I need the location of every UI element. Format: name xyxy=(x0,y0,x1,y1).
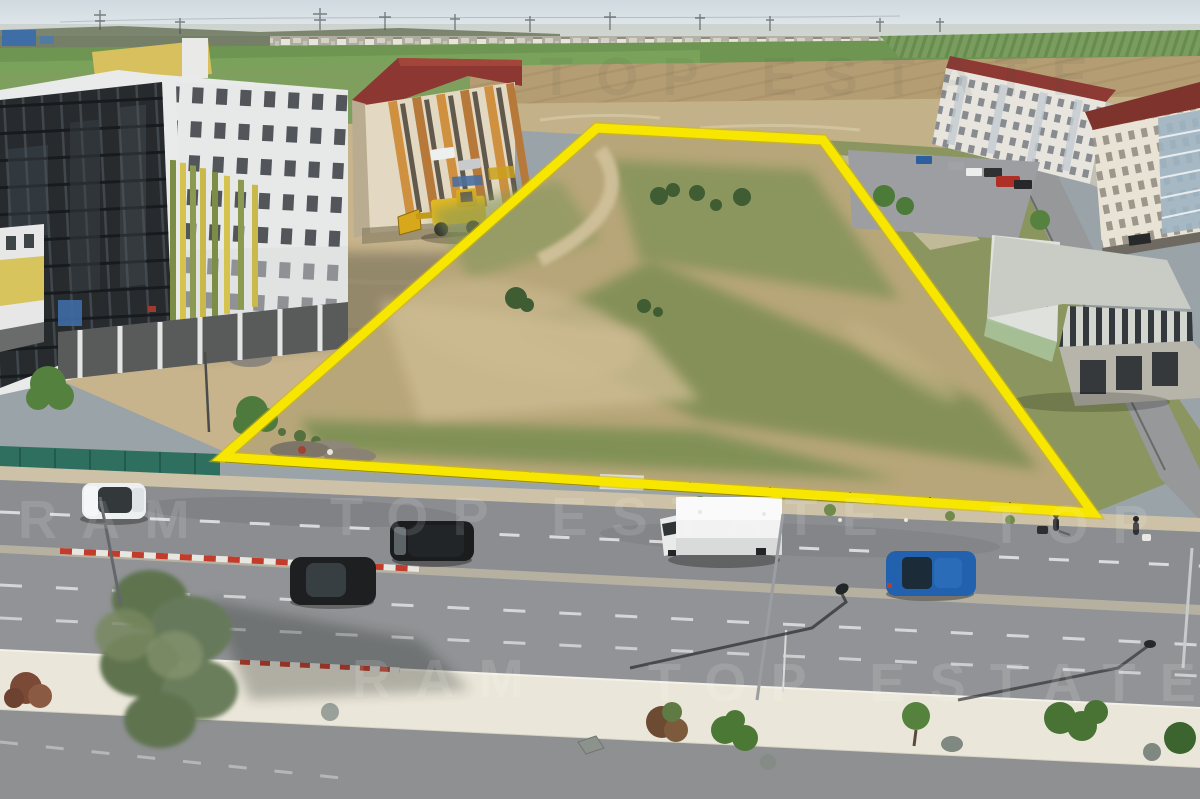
blue-warehouse xyxy=(2,30,36,46)
blue-suv-glass xyxy=(902,557,932,589)
parking-tree-2 xyxy=(896,197,914,215)
blue-shed xyxy=(40,36,54,44)
right-parking-lot xyxy=(848,150,1040,240)
back-wing-white-core xyxy=(182,38,208,78)
white-box-van xyxy=(660,497,782,568)
median-dark-bush xyxy=(1164,722,1196,754)
luggage xyxy=(1037,526,1048,534)
red-equipment xyxy=(148,306,156,312)
aerial-photo-land-plot: TOP ESTATE RAM TOP ESTATE TOP ESTATE RAM… xyxy=(0,0,1200,799)
blue-suv xyxy=(886,551,976,601)
low-wing-window-2 xyxy=(24,234,34,248)
left-building-under-construction xyxy=(0,38,348,395)
white-suv xyxy=(80,483,148,525)
minivan-windshield xyxy=(394,527,406,555)
commercial-shadow xyxy=(1010,392,1170,412)
black-minivan xyxy=(390,521,474,567)
low-wing-yellow-band xyxy=(0,256,44,306)
second-machine xyxy=(488,166,515,180)
hatchback-glass xyxy=(306,563,346,597)
blue-suv-taillight xyxy=(887,583,892,588)
photo-canvas xyxy=(0,0,1200,799)
dark-hatchback xyxy=(290,557,376,609)
low-wing-window-1 xyxy=(6,236,16,250)
slat-band xyxy=(1059,306,1193,347)
blue-tarp xyxy=(58,300,82,326)
white-bag xyxy=(1142,534,1151,541)
